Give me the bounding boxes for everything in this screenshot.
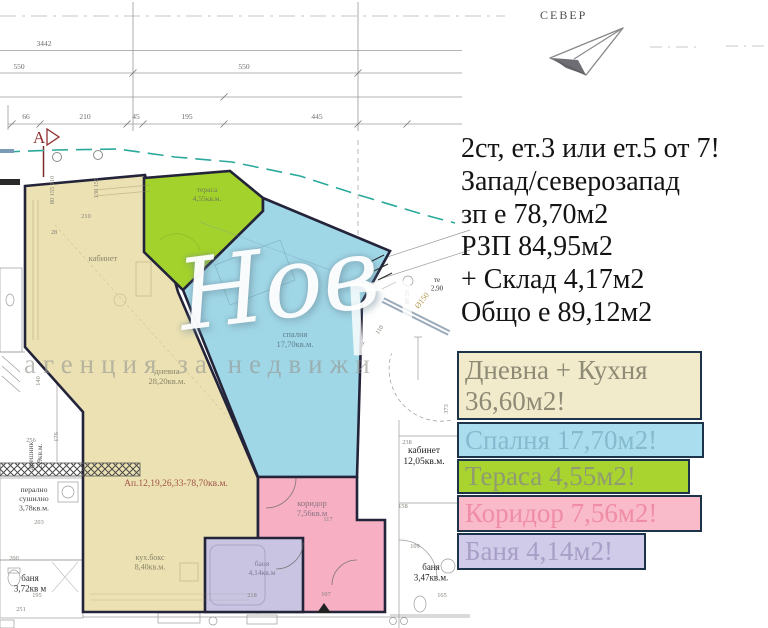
plan-dim-number: 28 xyxy=(51,229,57,236)
plan-room-label: дрешник2,9кв.м. xyxy=(26,441,44,470)
listing-line-orientation: Запад/северозапад xyxy=(461,166,720,199)
dim-210: 210 xyxy=(79,112,91,121)
plan-dim-number: 200 xyxy=(9,555,18,562)
listing-line-type: 2ст, ет.3 или ет.5 от 7! xyxy=(461,133,720,166)
dim-445: 445 xyxy=(311,112,323,121)
legend-living-kitchen-name: Дневна + Кухня xyxy=(465,355,694,386)
plan-dim-number: 130 155 xyxy=(93,178,100,198)
plan-dim-number: 238 xyxy=(402,439,411,446)
dim-45: 45 xyxy=(132,112,140,121)
legend-terrace-label: Тераса 4,55м2! xyxy=(465,461,636,492)
legend-corridor-label: Коридор 7,56м2! xyxy=(465,498,657,529)
plan-dim-number: 176 xyxy=(53,432,60,441)
wall-fragment-blue xyxy=(0,149,14,153)
plan-room-label: кабинет xyxy=(89,253,118,263)
grid-bubbles xyxy=(53,151,103,162)
plan-dim-number: 218 xyxy=(247,592,256,599)
plan-dim-number: 256 xyxy=(26,437,35,444)
plan-room-label: кух.бокс8,40кв.м. xyxy=(135,553,166,571)
plan-dim-number: 107 xyxy=(321,591,330,598)
marker-a-letter: A xyxy=(33,128,46,147)
plan-dim-number: 80 155 210 xyxy=(49,176,56,204)
legend-bedroom-label: Спалня 17,70м2! xyxy=(465,425,657,456)
plan-room-label: кабинет12,05кв.м. xyxy=(403,445,444,467)
plan-room-label: Ø150 xyxy=(413,291,431,311)
wall-hatch-band xyxy=(0,463,140,476)
plan-room-label: баня3,47кв.м. xyxy=(414,562,449,583)
legend-bedroom: Спалня 17,70м2! xyxy=(457,422,704,458)
plan-dim-number: 165 xyxy=(437,592,446,599)
dim-3442: 3442 xyxy=(37,39,52,48)
dim-550-left: 550 xyxy=(13,62,25,71)
floor-plan-listing-image: 3442 550 550 66 210 45 195 445 A xyxy=(0,0,768,628)
listing-line-net-area: зп е 78,70м2 xyxy=(461,199,720,232)
listing-line-total: Общо е 89,12м2 xyxy=(461,297,720,330)
listing-summary: 2ст, ет.3 или ет.5 от 7! Запад/северозап… xyxy=(461,133,720,330)
legend-living-kitchen: Дневна + Кухня 36,60м2! xyxy=(457,351,702,420)
plan-room-label: пералносушилно3,78кв.м. xyxy=(19,485,49,512)
legend-living-kitchen-area: 36,60м2! xyxy=(465,386,694,417)
plan-dim-number: 203 xyxy=(34,519,43,526)
plan-room-label: Ап.12,19,26,33-78,70кв.м. xyxy=(124,479,228,489)
plan-dim-number: 109 xyxy=(410,543,419,550)
plan-room-label: баня3,72кв м xyxy=(14,573,47,594)
listing-line-storage: + Склад 4,17м2 xyxy=(461,264,720,297)
listing-line-gross-area: РЗП 84,95м2 xyxy=(461,231,720,264)
plan-dim-number: 373 xyxy=(443,404,450,413)
dimension-labels: 3442 550 550 66 210 45 195 445 xyxy=(13,39,323,121)
legend-bath: Баня 4,14м2! xyxy=(457,533,646,570)
legend-terrace: Тераса 4,55м2! xyxy=(457,459,690,494)
wall-fragment xyxy=(0,179,20,185)
plan-dim-number: 210 xyxy=(81,213,90,220)
plan-dim-number: 158 xyxy=(398,503,407,510)
legend-corridor: Коридор 7,56м2! xyxy=(457,495,702,532)
plan-dim-number: 117 xyxy=(323,516,332,523)
watermark-logo-fragment xyxy=(350,280,414,355)
north-arrow-icon xyxy=(528,20,628,80)
dim-550-right: 550 xyxy=(238,62,250,71)
plan-room-label: тераса4,55кв.м. xyxy=(193,185,222,203)
plan-room-label: те2,90 xyxy=(431,276,444,292)
dim-195: 195 xyxy=(181,112,193,121)
legend-bath-label: Баня 4,14м2! xyxy=(465,536,613,567)
plan-dim-number: 251 xyxy=(16,606,25,613)
plan-dim-number: 140 xyxy=(35,376,42,385)
apartment-rooms xyxy=(25,171,390,612)
plan-dim-number: 195 xyxy=(32,592,41,599)
dim-66: 66 xyxy=(22,112,30,121)
